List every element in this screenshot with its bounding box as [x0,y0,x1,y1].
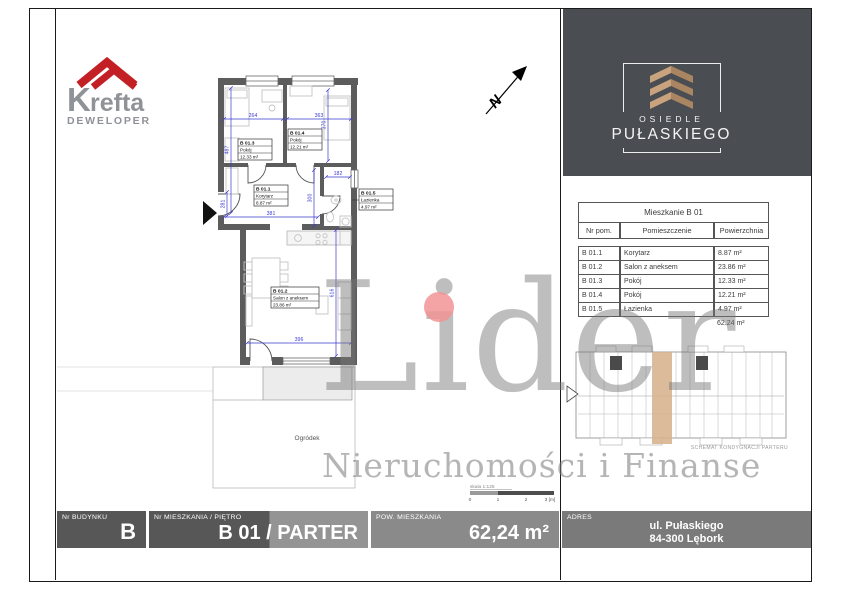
table-cell: B 01.3 [578,274,620,289]
footer-unit-cell: Nr MIESZKANIA / PIĘTRO B 01 / PARTER [149,511,368,548]
room-label-b012: B 01.2 Salon z aneksem 23.86 m² [271,287,319,308]
scale-bar: skala 1:125 0 1 2 3 [m] [469,484,556,503]
svg-text:616: 616 [330,289,336,298]
footer-address-label: ADRES [567,514,592,521]
footer-address-line2: 84-300 Lębork [650,533,724,546]
table-title: Mieszkanie B 01 [578,202,769,223]
col-header-area: Powierzchnia [714,223,769,239]
svg-text:B 01.5: B 01.5 [361,191,376,197]
room-table: Mieszkanie B 01 Nr pom. Pomieszczenie Po… [578,202,769,327]
table-cell: Pokój [620,288,714,303]
table-cell: B 01.4 [578,288,620,303]
svg-text:12.21 m²: 12.21 m² [290,145,309,150]
svg-text:Pokój: Pokój [240,148,252,153]
room-label-b014: B 01.4 Pokój 12.21 m² [288,129,322,150]
table-cell: Łazienka [620,302,714,317]
svg-text:8.87 m²: 8.87 m² [256,201,272,206]
table-cell: B 01.2 [578,260,620,275]
table-cell: 12.33 m² [714,274,769,289]
room-label-b015: B 01.5 Łazienka 4.97 m² [352,189,393,210]
svg-text:B 01.2: B 01.2 [273,289,288,295]
footer-area-label: POW. MIESZKANIA [376,514,441,521]
scale-ticks: 0 1 2 3 [m] [469,497,556,503]
apartment-plan: Ogródek [57,76,393,488]
footer-area-cell: POW. MIESZKANIA 62,24 m² [371,511,559,548]
svg-text:363: 363 [315,113,324,119]
table-total: 62.24 m² [578,317,769,327]
table-cell: Korytarz [620,246,714,261]
table-cell: B 01.5 [578,302,620,317]
table-header: Nr pom. Pomieszczenie Powierzchnia [578,223,769,239]
footer-unit-value: B 01 / PARTER [218,522,358,545]
schematic-caption: SCHEMAT KONDYGNACJI PARTERU [691,445,788,451]
north-arrow-icon: N [486,66,527,114]
svg-text:281: 281 [221,200,227,209]
svg-text:B 01.3: B 01.3 [240,141,255,147]
footer-building-value: B [120,519,136,545]
svg-text:Łazienka: Łazienka [361,198,380,203]
svg-text:B 01.1: B 01.1 [256,187,271,193]
terrace [263,367,352,400]
svg-text:Korytarz: Korytarz [256,194,274,199]
table-cell: 8.87 m² [714,246,769,261]
table-cell: Pokój [620,274,714,289]
garden-label: Ogródek [295,435,321,442]
svg-text:182: 182 [334,171,343,177]
col-header-room: Pomieszczenie [620,223,714,239]
exterior-walls [218,78,358,365]
svg-text:Pokój: Pokój [290,138,302,143]
svg-text:23.86 m²: 23.86 m² [273,303,292,308]
svg-text:B 01.4: B 01.4 [290,131,305,137]
floorplan-sheet: K refta DEWELOPER OSIEDLE PUŁASKIEGO [0,0,842,595]
svg-text:370: 370 [322,121,328,130]
footer-address-line1: ul. Pułaskiego [650,520,724,533]
table-cell: 12.21 m² [714,288,769,303]
footer-building-label: Nr BUDYNKU [62,514,107,521]
footer-unit-label: Nr MIESZKANIA / PIĘTRO [154,514,241,521]
table-cell: 23.86 m² [714,260,769,275]
svg-text:2: 2 [525,497,528,503]
svg-text:12.33 m²: 12.33 m² [240,155,259,160]
svg-text:0: 0 [469,497,472,503]
svg-text:3 [m]: 3 [m] [545,497,556,503]
table-body: B 01.1 Korytarz 8.87 m² B 01.2 Salon z a… [578,247,769,317]
table-cell: Salon z aneksem [620,260,714,275]
svg-text:264: 264 [249,113,258,119]
floor-schematic: SCHEMAT KONDYGNACJI PARTERU [567,346,788,451]
col-header-nr: Nr pom. [578,223,620,239]
schematic-core-1 [610,356,622,370]
table-cell: 4.97 m² [714,302,769,317]
schematic-core-2 [696,356,708,370]
svg-text:1: 1 [497,497,500,503]
room-label-b011: B 01.1 Korytarz 8.87 m² [254,185,288,206]
svg-text:4.97 m²: 4.97 m² [361,205,377,210]
schematic-highlighted-unit [652,352,672,444]
entrance-marker-icon [203,201,217,225]
room-labels: B 01.3 Pokój 12.33 m² B 01.4 Pokój 12.21… [238,129,393,308]
svg-text:487: 487 [225,146,231,155]
svg-text:381: 381 [267,211,276,217]
room-label-b013: B 01.3 Pokój 12.33 m² [238,139,272,160]
svg-text:Salon z aneksem: Salon z aneksem [273,296,308,301]
scale-label: skala 1:125 [470,484,495,490]
footer-address-cell: ADRES ul. Pułaskiego 84-300 Lębork [562,511,811,548]
svg-text:396: 396 [295,337,304,343]
footer-building-cell: Nr BUDYNKU B [57,511,146,548]
table-cell: B 01.1 [578,246,620,261]
footer-area-value: 62,24 m² [469,522,549,545]
svg-text:300: 300 [308,194,314,203]
